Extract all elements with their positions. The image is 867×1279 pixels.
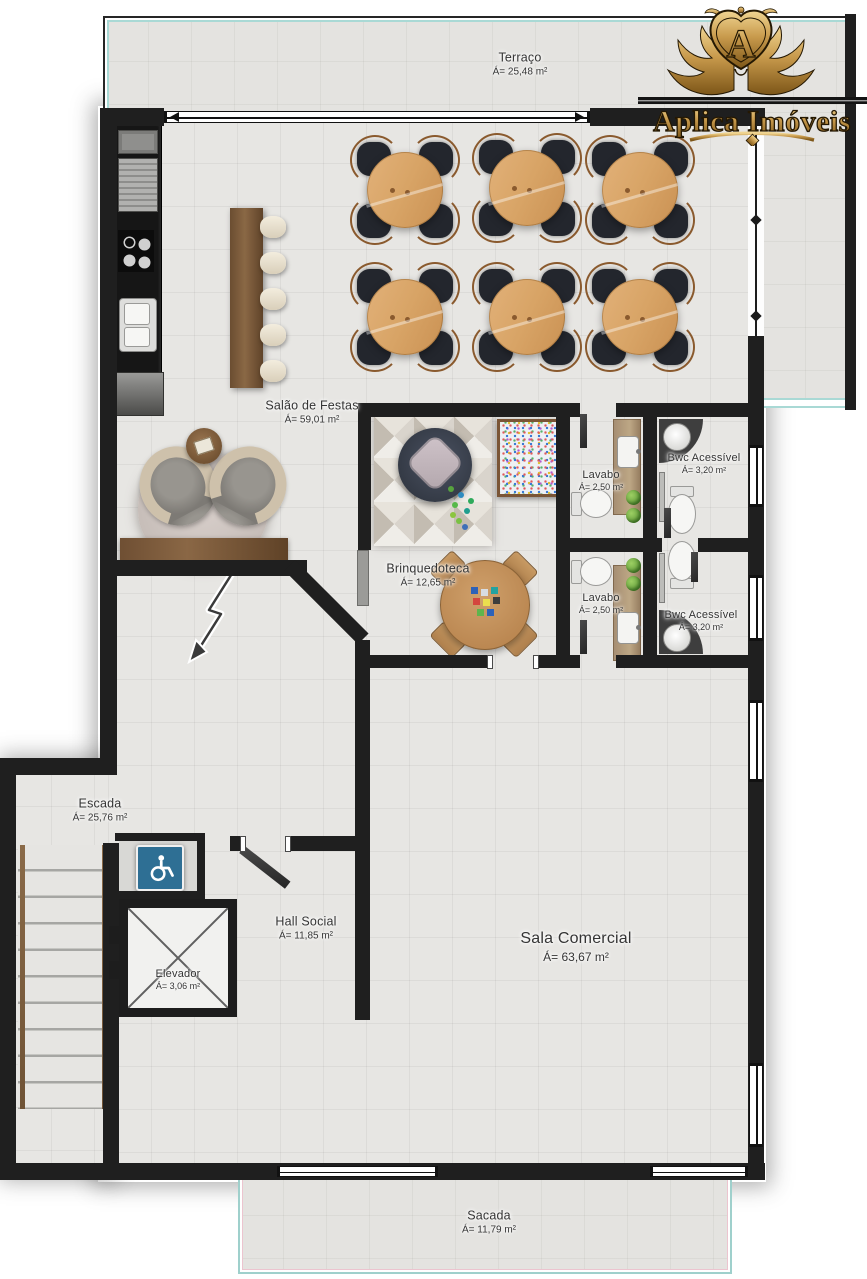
room-area: Á= 25,48 m² — [493, 66, 548, 79]
window — [749, 1063, 763, 1147]
plant — [626, 508, 641, 523]
microwave — [118, 130, 158, 154]
plant — [626, 558, 641, 573]
bar-stool — [260, 360, 286, 382]
wall — [0, 758, 16, 1180]
wall — [290, 836, 356, 851]
bar-counter — [230, 208, 263, 388]
fridge — [118, 158, 158, 212]
room-area: Á= 63,67 m² — [520, 950, 631, 966]
cooktop — [118, 230, 154, 272]
room-label-salao: Salão de Festas Á= 59,01 m² — [265, 397, 358, 426]
room-name: Sacada — [462, 1207, 516, 1223]
dining-table — [588, 138, 692, 242]
brand-logo: A Aplica Imóveis — [638, 4, 867, 146]
window-end-arrow — [170, 112, 179, 122]
kitchen-cabinet — [116, 372, 164, 416]
wall — [570, 403, 580, 417]
lavabo-sink — [617, 436, 639, 468]
wall — [643, 417, 657, 544]
side-table — [186, 428, 222, 464]
door-jamb — [533, 655, 539, 669]
wall — [698, 538, 763, 552]
window-end-arrow — [575, 112, 584, 122]
dining-table — [353, 265, 457, 369]
stair-flight — [18, 845, 110, 1109]
dining-table — [588, 265, 692, 369]
room-area: Á= 2,50 m² — [579, 605, 623, 617]
window — [650, 1166, 748, 1177]
elevator-door-mark — [109, 961, 119, 979]
window — [164, 111, 590, 123]
bar-stool — [260, 216, 286, 238]
door-leaf — [691, 552, 698, 582]
room-name: Lavabo — [579, 591, 623, 605]
door-leaf — [664, 508, 671, 538]
room-name: Lavabo — [579, 468, 623, 482]
plant — [626, 490, 641, 505]
door-jamb — [285, 836, 291, 852]
wall — [358, 655, 490, 668]
room-name: Salão de Festas — [265, 397, 358, 413]
wall — [100, 108, 117, 775]
room-label-elevador: Elevador Á= 3,06 m² — [155, 967, 200, 993]
dining-table — [475, 136, 579, 240]
wall — [358, 403, 371, 550]
terrace-edge-line — [762, 398, 845, 408]
grab-bar — [659, 553, 665, 603]
room-area: Á= 12,65 m² — [386, 577, 469, 590]
room-label-bwc-1: Bwc Acessível Á= 3,20 m² — [668, 451, 741, 477]
room-label-escada: Escada Á= 25,76 m² — [73, 795, 128, 824]
room-name: Terraço — [493, 49, 548, 65]
glass-partition — [748, 126, 764, 336]
window — [749, 575, 763, 641]
room-label-bwc-2: Bwc Acessível Á= 3,20 m² — [665, 608, 738, 634]
ball-pit — [497, 419, 561, 497]
floor-plan: Terraço Á= 25,48 m² Salão de Festas Á= 5… — [0, 0, 867, 1279]
bar-stool — [260, 324, 286, 346]
room-area: Á= 11,85 m² — [275, 930, 336, 943]
room-name: Sala Comercial — [520, 929, 631, 950]
wall — [556, 403, 570, 668]
room-name: Hall Social — [275, 913, 336, 929]
window — [749, 445, 763, 507]
bar-stool — [260, 252, 286, 274]
toilet-bowl — [668, 494, 696, 534]
terrace-floor-right — [762, 112, 845, 402]
dining-table — [475, 265, 579, 369]
wall — [570, 538, 662, 552]
room-label-brinquedoteca: Brinquedoteca Á= 12,65 m² — [386, 560, 469, 589]
bar-stool — [260, 288, 286, 310]
door-jamb — [487, 655, 493, 669]
door-jamb — [240, 836, 246, 852]
room-name: Escada — [73, 795, 128, 811]
niche-wall — [197, 833, 205, 899]
room-name: Elevador — [155, 967, 200, 981]
kitchen-sink — [119, 298, 157, 352]
wall — [355, 640, 370, 1020]
wall — [643, 552, 657, 668]
room-area: Á= 2,50 m² — [579, 482, 623, 494]
round-basin — [663, 423, 691, 451]
room-name: Bwc Acessível — [668, 451, 741, 465]
door-leaf — [580, 620, 587, 654]
room-name: Bwc Acessível — [665, 608, 738, 622]
room-area: Á= 25,76 m² — [73, 812, 128, 825]
niche-wall — [115, 833, 205, 841]
niche-wall — [115, 891, 205, 899]
toys-cluster — [448, 486, 454, 492]
elevator-cross — [128, 908, 228, 1008]
wheelchair-icon — [145, 853, 175, 883]
room-label-hall: Hall Social Á= 11,85 m² — [275, 913, 336, 942]
window — [749, 700, 763, 782]
room-label-lavabo-1: Lavabo Á= 2,50 m² — [579, 468, 623, 494]
wall — [536, 655, 570, 668]
accessibility-sign — [136, 845, 184, 891]
kids-sofa — [398, 428, 472, 502]
room-area: Á= 3,20 m² — [668, 465, 741, 477]
wall — [115, 560, 307, 576]
room-label-sacada: Sacada Á= 11,79 m² — [462, 1207, 516, 1236]
elevator-door-mark — [109, 926, 119, 944]
wall — [616, 403, 763, 417]
wall — [358, 403, 570, 417]
room-label-terraco: Terraço Á= 25,48 m² — [493, 49, 548, 78]
room-area: Á= 59,01 m² — [265, 414, 358, 427]
room-area: Á= 3,20 m² — [665, 622, 738, 634]
elevator-shaft — [119, 899, 237, 1017]
dining-table — [353, 138, 457, 242]
room-area: Á= 11,79 m² — [462, 1224, 516, 1237]
wall — [0, 758, 117, 775]
stair-stringer — [20, 845, 25, 1109]
door-leaf — [580, 414, 587, 448]
toilet-bowl — [580, 557, 612, 586]
logo-monogram: A — [727, 21, 756, 66]
plant — [626, 576, 641, 591]
wall — [230, 836, 240, 851]
room-label-sala-comercial: Sala Comercial Á= 63,67 m² — [520, 929, 631, 965]
window — [277, 1166, 438, 1177]
room-label-lavabo-2: Lavabo Á= 2,50 m² — [579, 591, 623, 617]
stair-direction-arrow — [183, 566, 245, 666]
door-leaf — [357, 550, 369, 606]
room-area: Á= 3,06 m² — [155, 981, 200, 993]
wall — [616, 655, 763, 668]
room-name: Brinquedoteca — [386, 560, 469, 576]
wall — [570, 655, 580, 668]
